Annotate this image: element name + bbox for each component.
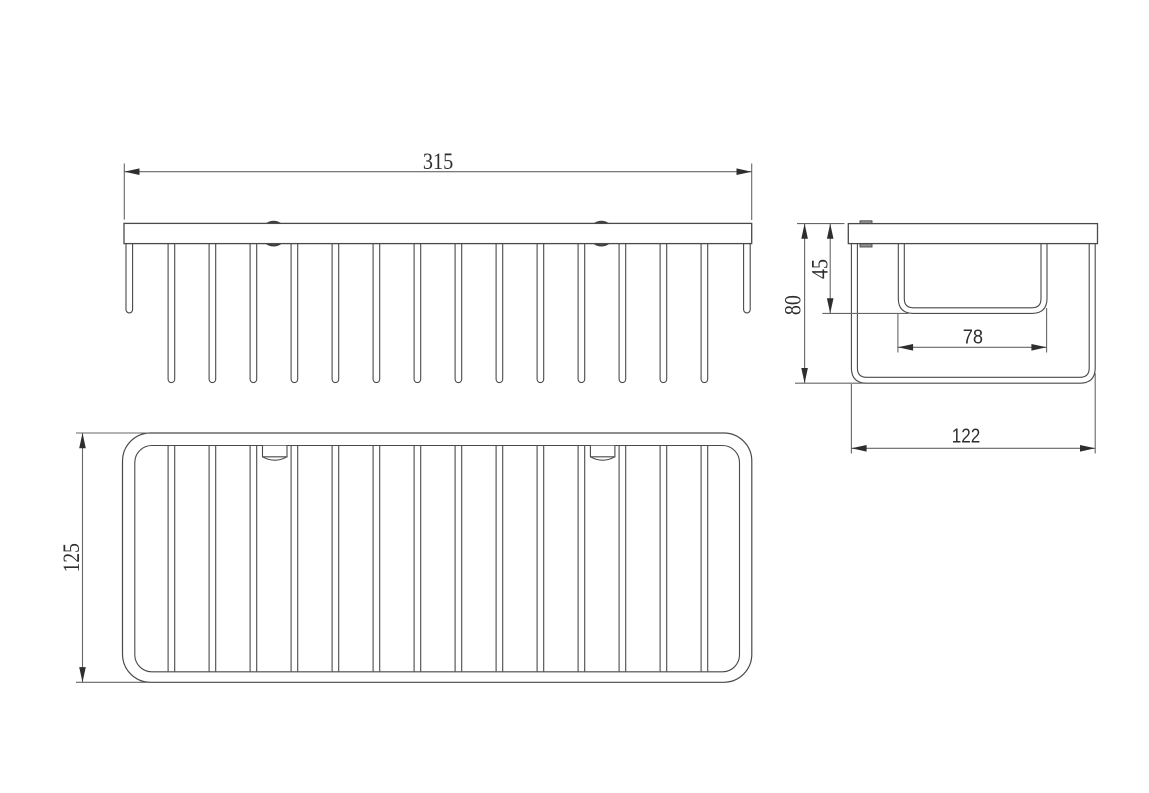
svg-text:80: 80 [780,295,805,315]
svg-text:78: 78 [963,326,983,349]
svg-text:125: 125 [59,543,84,572]
svg-text:45: 45 [808,259,833,279]
svg-text:122: 122 [952,424,981,447]
svg-text:315: 315 [423,149,453,174]
